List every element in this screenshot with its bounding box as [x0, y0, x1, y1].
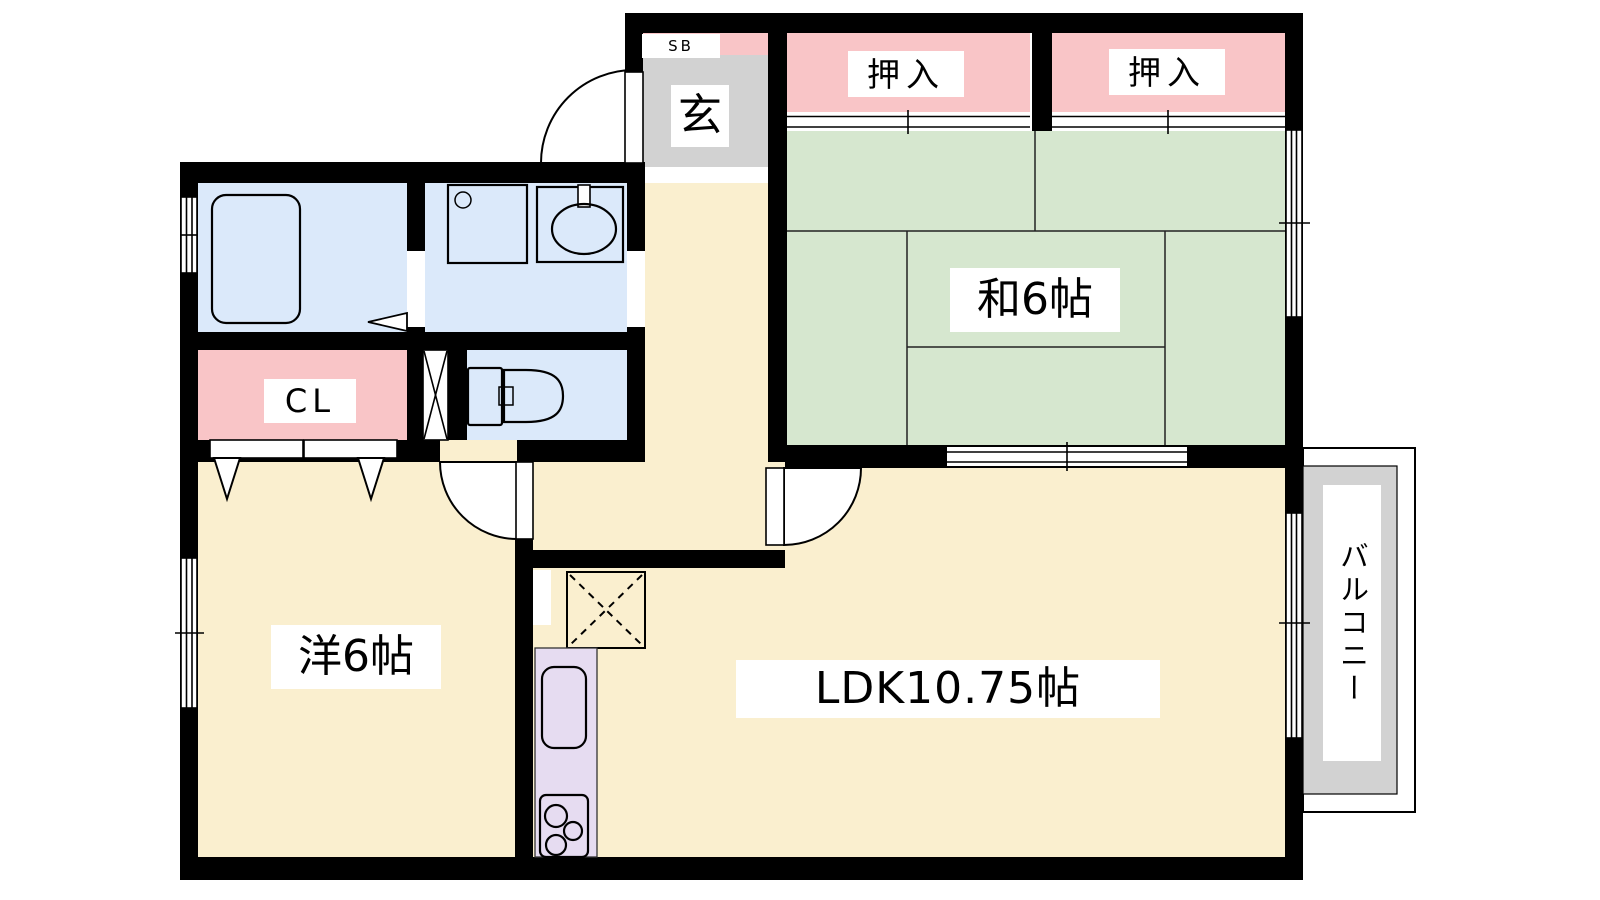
oshiire-2-fusuma	[1052, 110, 1285, 134]
closet-2-label: 押入	[1109, 49, 1225, 95]
ldk-label: LDK10.75帖	[736, 660, 1160, 718]
entrance-step	[643, 167, 768, 183]
western-room-label: 洋6帖	[271, 625, 441, 689]
toilet-floor	[467, 349, 627, 440]
pipe-shaft	[423, 350, 448, 440]
hallway-lower-floor	[533, 462, 785, 550]
entrance-label: 玄	[671, 85, 729, 147]
balcony-label: バルコニー	[1323, 485, 1381, 761]
washroom-door-opening	[627, 251, 645, 327]
bathroom-door-opening	[407, 251, 425, 327]
closet-cl-label: CL	[264, 379, 356, 423]
hallway-upper-floor	[645, 183, 768, 462]
closet-1-label: 押入	[848, 51, 964, 97]
oshiire-1-fusuma	[787, 110, 1030, 134]
floor-plan: SB 玄 押入 押入 和6帖 CL 洋6帖 LDK10.75帖 バルコニー	[0, 0, 1600, 900]
window-bathroom	[181, 197, 197, 273]
kitchen-side-opening	[533, 570, 551, 625]
shoe-box-label: SB	[642, 34, 720, 58]
entry-door	[541, 70, 643, 163]
refrigerator-space	[567, 572, 645, 648]
floor-plan-drawing	[0, 0, 1600, 900]
japanese-room-label: 和6帖	[950, 268, 1120, 332]
western-room-doorway-gap	[440, 440, 517, 462]
